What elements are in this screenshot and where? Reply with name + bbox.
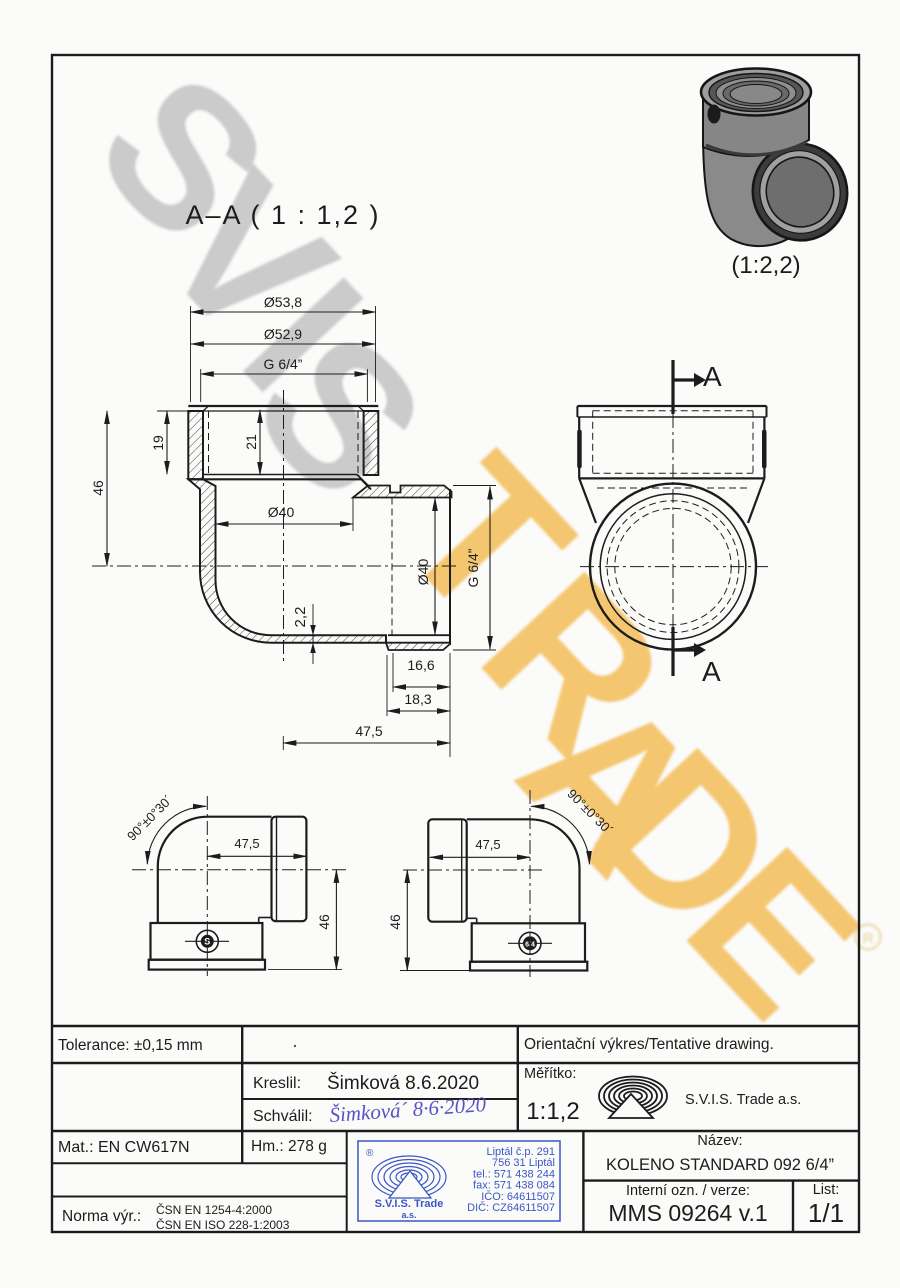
svg-text:19: 19	[150, 435, 166, 451]
svg-text:Ø40: Ø40	[415, 559, 431, 586]
svg-text:®: ®	[366, 1148, 374, 1159]
svg-text:Orientační výkres/Tentative dr: Orientační výkres/Tentative drawing.	[524, 1036, 774, 1053]
svg-text:a.s.: a.s.	[401, 1210, 416, 1220]
svg-text:A: A	[702, 656, 721, 687]
svg-text:Ø53,8: Ø53,8	[264, 294, 302, 310]
svg-text:ČSN EN 1254-4:2000: ČSN EN 1254-4:2000	[156, 1202, 272, 1217]
svg-text:A: A	[703, 361, 722, 392]
svg-text:1/1: 1/1	[808, 1198, 844, 1228]
svg-text:Ø40: Ø40	[268, 504, 295, 520]
svg-text:S.V.I.S. Trade a.s.: S.V.I.S. Trade a.s.	[685, 1092, 801, 1108]
svg-text:Ø52,9: Ø52,9	[264, 326, 302, 342]
svg-text:Hm.: 278 g: Hm.: 278 g	[251, 1138, 327, 1155]
svg-text:KOLENO STANDARD 092 6/4”: KOLENO STANDARD 092 6/4”	[606, 1156, 834, 1174]
svg-text:List:: List:	[813, 1182, 840, 1198]
svg-text:46: 46	[316, 914, 332, 930]
svg-text:Měřítko:: Měřítko:	[524, 1066, 576, 1082]
svg-text:16,6: 16,6	[407, 657, 434, 673]
svg-text:Interní ozn. / verze:: Interní ozn. / verze:	[626, 1183, 750, 1199]
svg-text:1:1,2: 1:1,2	[526, 1098, 579, 1125]
svg-text:Schválil:: Schválil:	[253, 1108, 313, 1125]
svg-text:Liptál č.p. 291: Liptál č.p. 291	[487, 1146, 556, 1158]
svg-text:R: R	[863, 930, 874, 947]
svg-text:Tolerance: ±0,15 mm: Tolerance: ±0,15 mm	[58, 1037, 203, 1054]
svg-text:G 6/4”: G 6/4”	[264, 356, 303, 372]
svg-text:Název:: Název:	[697, 1133, 742, 1149]
svg-text:ČSN EN ISO 228-1:2003: ČSN EN ISO 228-1:2003	[156, 1217, 290, 1232]
svg-text:46: 46	[90, 480, 106, 496]
svg-text:21: 21	[243, 434, 259, 450]
svg-text:47,5: 47,5	[475, 837, 500, 852]
svg-text:DIČ: CZ64611507: DIČ: CZ64611507	[467, 1201, 555, 1214]
svg-text:Kreslil:: Kreslil:	[253, 1075, 301, 1092]
svg-text:Mat.: EN CW617N: Mat.: EN CW617N	[58, 1139, 190, 1156]
svg-text:46: 46	[387, 914, 403, 930]
svg-text:tel.: 571 438 244: tel.: 571 438 244	[473, 1168, 555, 1180]
svg-text:Norma výr.:: Norma výr.:	[62, 1208, 141, 1225]
svg-text:18,3: 18,3	[404, 691, 431, 707]
svg-text:G 6/4”: G 6/4”	[465, 548, 481, 587]
svg-text:fax: 571 438 084: fax: 571 438 084	[473, 1180, 555, 1192]
svg-text:IČO: 64611507: IČO: 64611507	[481, 1190, 555, 1203]
svg-text:S.V.I.S. Trade: S.V.I.S. Trade	[375, 1198, 444, 1210]
svg-text:756 31 Liptál: 756 31 Liptál	[492, 1157, 555, 1169]
svg-text:(1:2,2): (1:2,2)	[731, 252, 800, 279]
svg-text:MMS 09264 v.1: MMS 09264 v.1	[608, 1200, 767, 1226]
svg-text:Šimková 8.6.2020: Šimková 8.6.2020	[327, 1072, 479, 1094]
svg-text:47,5: 47,5	[234, 836, 259, 851]
svg-text:2,2: 2,2	[292, 607, 309, 628]
svg-text:47,5: 47,5	[355, 723, 382, 739]
svg-text:A–A ( 1 : 1,2 ): A–A ( 1 : 1,2 )	[185, 200, 380, 230]
